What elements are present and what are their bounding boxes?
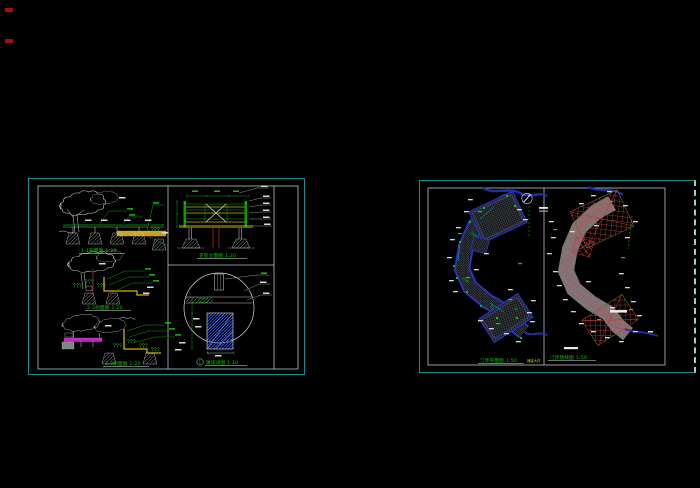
cad-viewport: 1-1剖面图1:20	[0, 0, 700, 488]
section-3-title: 3-3剖面图1:20	[105, 360, 141, 367]
post-top	[215, 274, 224, 290]
section-1-drawing: 1-1剖面图1:20	[59, 191, 169, 254]
plan-sheet-svg: 汀步平面图1:50 铺装大样	[420, 181, 694, 372]
leader-labels	[239, 186, 272, 227]
layout-title: 汀步放线图1:50	[550, 354, 587, 361]
detail-badge: 1	[199, 360, 202, 365]
dimension-lines	[191, 297, 193, 349]
pergola-elevation: 花架立面图1:20	[176, 186, 272, 260]
deck-and-supports	[177, 226, 255, 248]
red-corner-mark-2	[5, 39, 13, 43]
section-3-drawing: 3-3剖面图1:20	[62, 314, 186, 367]
detail-title: 做法详图1:10	[206, 359, 238, 366]
section-1-title: 1-1剖面图1:20	[81, 247, 117, 254]
stream-line	[524, 332, 547, 335]
path-structure	[102, 329, 161, 364]
detail-sheet[interactable]: 1-1剖面图1:20	[28, 178, 305, 375]
plan-note: 铺装大样	[527, 358, 541, 363]
red-corner-mark-1	[5, 8, 13, 12]
plan-sheet[interactable]: 汀步平面图1:50 铺装大样	[419, 180, 696, 373]
bench-structure	[62, 333, 102, 349]
footing-block	[207, 313, 235, 355]
trellis-frame	[184, 201, 248, 227]
detail-sheet-svg: 1-1剖面图1:20	[29, 179, 304, 374]
slab-layers	[186, 297, 252, 303]
legend-bars	[539, 207, 548, 212]
path-structure	[73, 277, 149, 304]
construction-detail-circle: 1 做法详图1:10	[184, 273, 272, 367]
stream-line	[483, 188, 547, 196]
stepping-path-layout: 汀步放线图1:50	[547, 187, 658, 361]
plan-title: 汀步平面图1:50	[480, 357, 517, 364]
stepping-path-plan: 汀步平面图1:50 铺装大样	[447, 188, 548, 364]
section-2-drawing: 2-2剖面图1:20	[67, 250, 159, 311]
annotation-marks	[105, 322, 186, 350]
elevation-title: 花架立面图1:20	[199, 252, 236, 259]
stream-line	[625, 329, 658, 336]
section-2-title: 2-2剖面图1:20	[87, 304, 123, 311]
